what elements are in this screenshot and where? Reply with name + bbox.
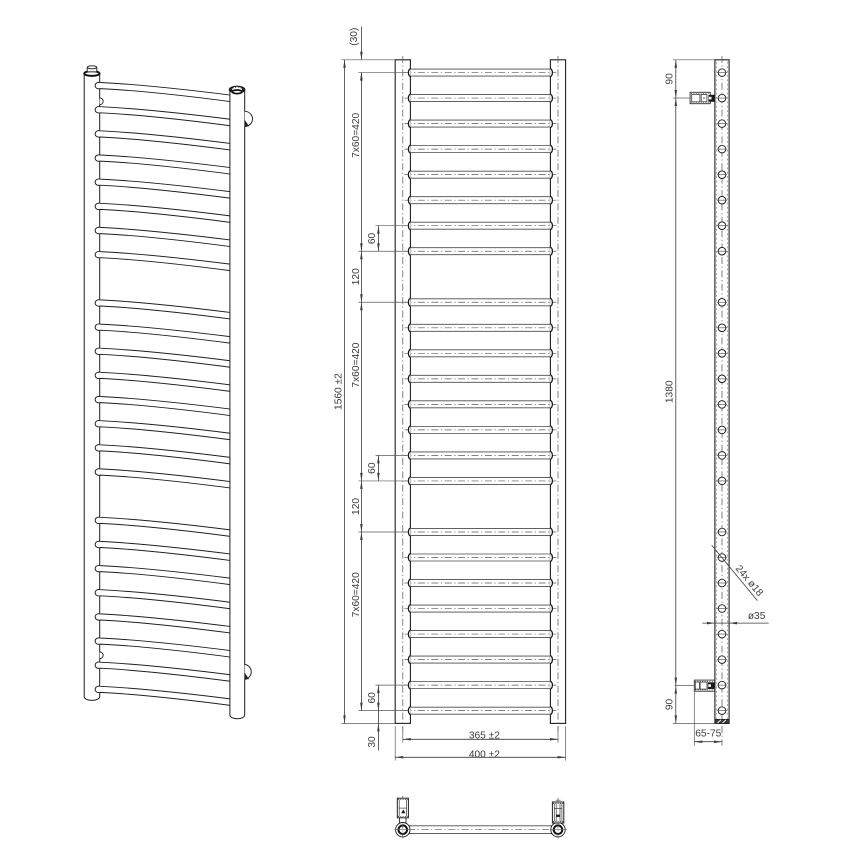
svg-text:7x60=420: 7x60=420 [351,572,362,617]
svg-text:(30): (30) [349,28,360,46]
svg-text:120: 120 [351,498,362,515]
svg-text:1560 ±2: 1560 ±2 [333,373,344,410]
svg-text:1380: 1380 [665,380,676,403]
svg-text:120: 120 [351,268,362,285]
svg-text:60: 60 [367,232,378,244]
svg-text:7x60=420: 7x60=420 [351,113,362,158]
svg-text:65-75: 65-75 [695,729,721,740]
svg-text:90: 90 [665,73,676,85]
svg-text:30: 30 [367,736,378,748]
svg-text:365 ±2: 365 ±2 [469,731,500,742]
svg-text:ø35: ø35 [748,611,766,622]
svg-text:400 ±2: 400 ±2 [469,750,500,761]
svg-text:60: 60 [367,692,378,704]
svg-text:90: 90 [665,699,676,711]
svg-text:7x60=420: 7x60=420 [351,342,362,387]
svg-text:60: 60 [367,462,378,474]
